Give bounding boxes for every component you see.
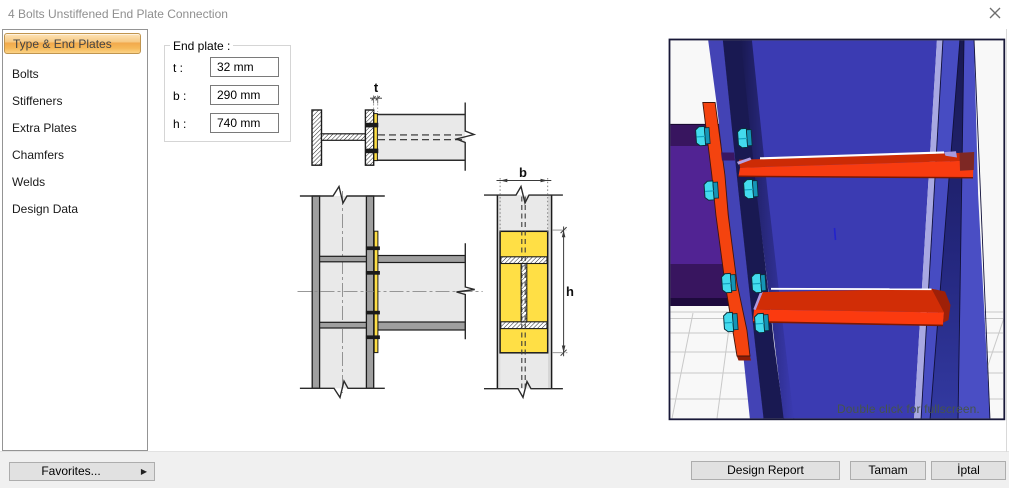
svg-text:b: b — [519, 165, 527, 180]
svg-text:h: h — [566, 284, 574, 299]
svg-text:t: t — [374, 80, 379, 95]
